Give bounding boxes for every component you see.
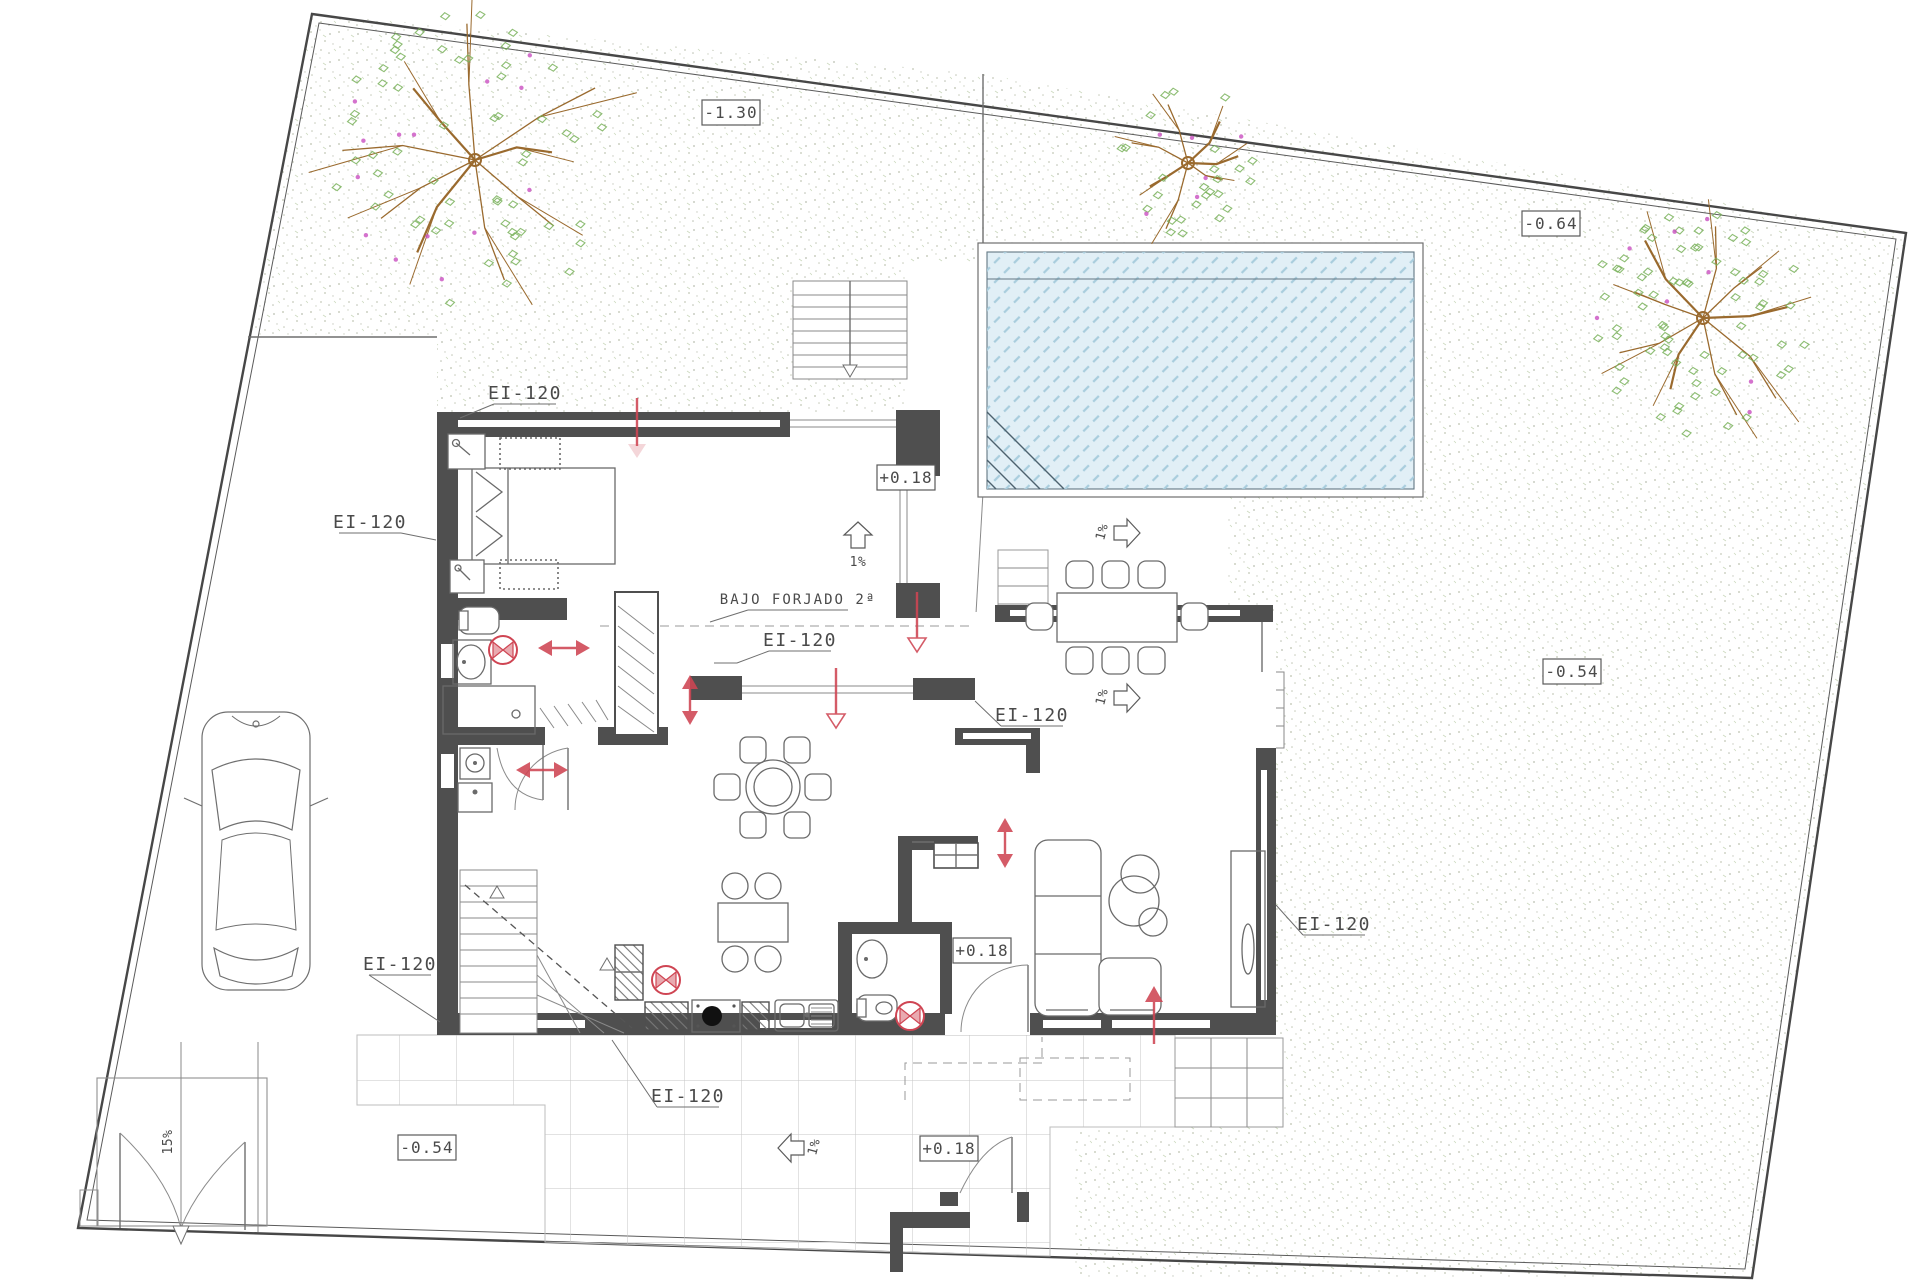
emergency-light-wc (896, 1002, 924, 1030)
emergency-light-kitchen (652, 966, 680, 994)
slope-arrow-right-upper: 1% (1093, 519, 1140, 547)
svg-text:1%: 1% (1093, 522, 1112, 542)
svg-text:1%: 1% (850, 555, 867, 570)
svg-text:BAJO FORJADO 2ª: BAJO FORJADO 2ª (720, 592, 876, 608)
label-level-garden-ne: -0.64 (1522, 211, 1580, 236)
label-fire-rating-stair: EI-120 (363, 954, 440, 1022)
entrance-gate: 15% (120, 1042, 245, 1244)
label-fire-rating-west: EI-120 (333, 512, 436, 540)
label-level-terrace-sw: -0.54 (398, 1135, 456, 1160)
svg-text:EI-120: EI-120 (333, 512, 407, 533)
label-level-entry-east: +0.18 (953, 938, 1011, 963)
svg-text:EI-120: EI-120 (995, 705, 1069, 726)
svg-text:+0.18: +0.18 (879, 468, 932, 487)
car (184, 712, 328, 990)
svg-text:EI-120: EI-120 (488, 383, 562, 404)
label-level-garden-nw: -1.30 (702, 100, 760, 125)
svg-text:-0.54: -0.54 (400, 1138, 453, 1157)
floor-plan-canvas: 15% (0, 0, 1920, 1280)
svg-text:EI-120: EI-120 (651, 1086, 725, 1107)
svg-text:-0.54: -0.54 (1545, 662, 1598, 681)
label-slope-ramp: 15% (161, 1130, 176, 1155)
svg-text:-0.64: -0.64 (1524, 214, 1577, 233)
exterior-stair-north (793, 281, 907, 379)
floor-plan-page: 15% (0, 0, 1920, 1280)
svg-text:EI-120: EI-120 (1297, 914, 1371, 935)
svg-text:EI-120: EI-120 (763, 630, 837, 651)
label-level-main-floor: +0.18 (877, 465, 935, 490)
swimming-pool (978, 243, 1423, 497)
label-level-garden-e: -0.54 (1543, 659, 1601, 684)
svg-text:-1.30: -1.30 (704, 103, 757, 122)
svg-text:+0.18: +0.18 (922, 1139, 975, 1158)
label-level-terrace-south: +0.18 (920, 1136, 978, 1161)
svg-text:EI-120: EI-120 (363, 954, 437, 975)
emergency-light-bath (489, 636, 517, 664)
svg-text:+0.18: +0.18 (955, 941, 1008, 960)
